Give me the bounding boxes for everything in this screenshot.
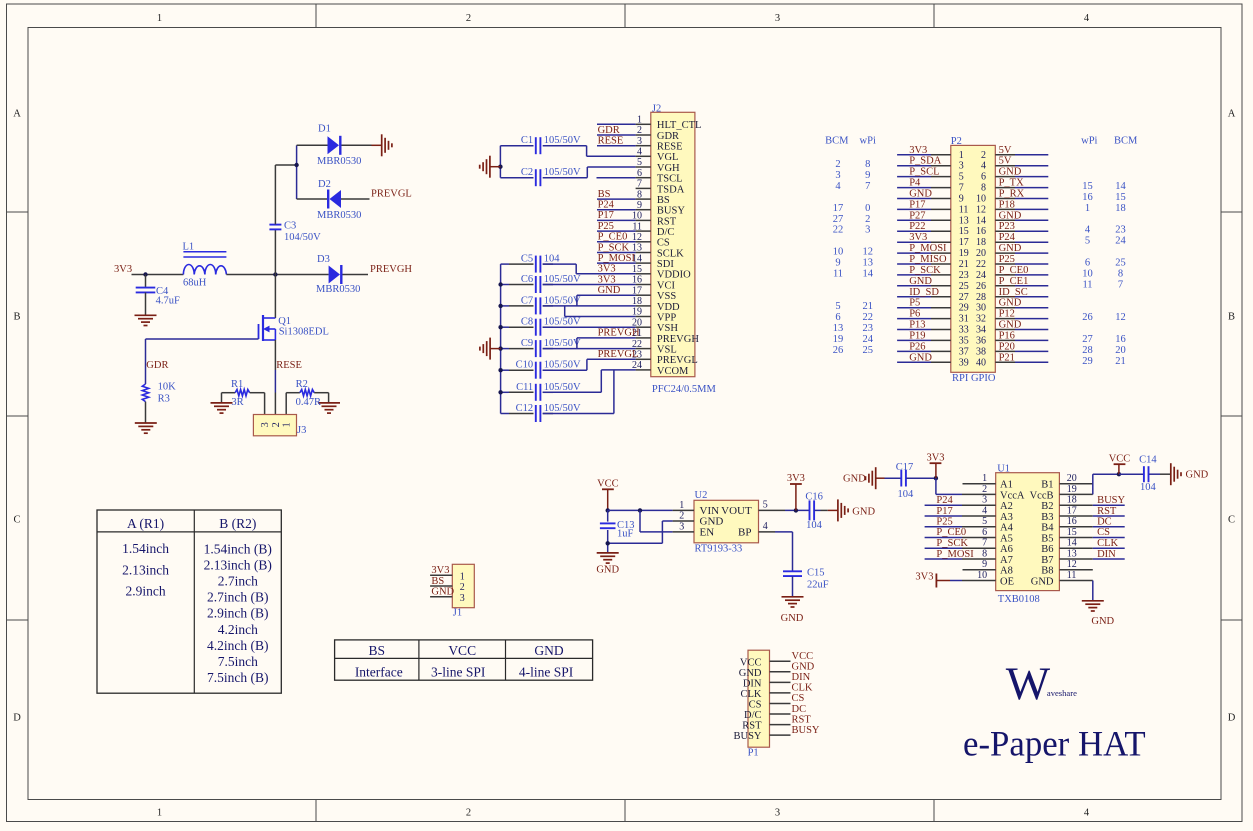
svg-text:B (R2): B (R2)	[219, 516, 256, 531]
svg-text:P_MOSI: P_MOSI	[936, 549, 974, 560]
svg-text:BUSY: BUSY	[792, 725, 820, 736]
svg-text:12: 12	[1067, 559, 1077, 570]
svg-text:24: 24	[1115, 236, 1126, 247]
svg-text:C: C	[13, 515, 20, 526]
svg-text:CS: CS	[792, 693, 805, 704]
svg-text:1: 1	[637, 115, 642, 126]
svg-text:34: 34	[976, 325, 986, 336]
svg-text:DIN: DIN	[792, 672, 811, 683]
svg-text:5V: 5V	[999, 145, 1012, 156]
svg-text:1: 1	[157, 808, 162, 819]
svg-text:P22: P22	[909, 221, 925, 232]
svg-text:RST: RST	[792, 714, 812, 725]
svg-text:5: 5	[763, 499, 768, 510]
svg-text:TSDA: TSDA	[657, 184, 685, 195]
svg-text:11: 11	[1067, 570, 1077, 581]
svg-text:8: 8	[637, 189, 642, 200]
svg-text:VCOM: VCOM	[657, 366, 689, 377]
svg-text:1: 1	[959, 150, 964, 161]
svg-text:P21: P21	[999, 352, 1015, 363]
svg-text:RT9193-33: RT9193-33	[695, 544, 743, 555]
svg-text:MBR0530: MBR0530	[317, 156, 361, 167]
svg-text:6: 6	[982, 527, 987, 538]
svg-text:2: 2	[466, 13, 471, 24]
svg-text:SDI: SDI	[657, 259, 674, 270]
svg-text:GND: GND	[1091, 616, 1114, 627]
svg-text:5: 5	[835, 301, 840, 312]
svg-text:6: 6	[981, 172, 986, 183]
svg-text:2: 2	[835, 159, 840, 170]
svg-text:23: 23	[1115, 225, 1126, 236]
svg-text:25: 25	[862, 345, 873, 356]
svg-text:A6: A6	[1000, 544, 1013, 555]
svg-text:8: 8	[1118, 268, 1123, 279]
svg-text:D: D	[1228, 713, 1236, 724]
svg-text:39: 39	[959, 357, 969, 368]
svg-text:ID_SC: ID_SC	[999, 287, 1028, 298]
svg-text:10: 10	[1082, 268, 1093, 279]
svg-text:33: 33	[959, 325, 969, 336]
svg-text:A8: A8	[1000, 566, 1013, 577]
svg-text:0: 0	[865, 203, 870, 214]
svg-text:VSH: VSH	[657, 323, 678, 334]
svg-text:8: 8	[982, 549, 987, 560]
svg-text:5: 5	[959, 172, 964, 183]
svg-text:13: 13	[862, 258, 873, 269]
svg-text:BP: BP	[738, 526, 751, 538]
svg-text:16: 16	[1067, 516, 1077, 527]
svg-text:23: 23	[959, 270, 969, 281]
svg-text:35: 35	[959, 335, 969, 346]
svg-text:38: 38	[976, 346, 986, 357]
svg-text:105/50V: 105/50V	[544, 360, 581, 371]
svg-text:DC: DC	[792, 704, 807, 715]
svg-text:PREVGH: PREVGH	[370, 264, 412, 275]
svg-text:8: 8	[865, 159, 870, 170]
svg-text:VDD: VDD	[657, 302, 680, 313]
svg-text:13: 13	[1067, 549, 1077, 560]
svg-text:4: 4	[1084, 13, 1090, 24]
svg-text:16: 16	[1115, 334, 1126, 345]
svg-text:24: 24	[862, 334, 873, 345]
svg-text:BUSY: BUSY	[657, 206, 685, 217]
svg-text:14: 14	[862, 268, 873, 279]
svg-text:22: 22	[862, 312, 873, 323]
svg-text:B6: B6	[1041, 544, 1053, 555]
svg-text:16: 16	[1082, 192, 1093, 203]
svg-text:B: B	[1228, 312, 1235, 323]
svg-text:GND: GND	[999, 320, 1022, 331]
svg-text:U2: U2	[695, 490, 708, 501]
svg-text:68uH: 68uH	[183, 277, 207, 288]
svg-text:A: A	[1228, 109, 1236, 120]
svg-text:J1: J1	[453, 608, 462, 619]
svg-text:3V3: 3V3	[598, 264, 616, 275]
svg-text:2: 2	[637, 125, 642, 136]
svg-text:P23: P23	[999, 221, 1015, 232]
svg-text:CLK: CLK	[1097, 538, 1118, 549]
svg-text:104: 104	[1140, 482, 1157, 493]
svg-text:VCC: VCC	[1109, 453, 1131, 464]
svg-text:2: 2	[982, 484, 987, 495]
svg-text:VGH: VGH	[657, 163, 680, 174]
svg-text:9: 9	[637, 200, 642, 211]
svg-text:105/50V: 105/50V	[544, 274, 581, 285]
svg-text:1uF: 1uF	[617, 529, 634, 540]
svg-text:L1: L1	[183, 242, 195, 253]
svg-text:GND: GND	[999, 167, 1022, 178]
svg-text:21: 21	[862, 301, 873, 312]
svg-text:4: 4	[1085, 225, 1091, 236]
svg-text:GND: GND	[999, 298, 1022, 309]
svg-text:P26: P26	[909, 341, 925, 352]
svg-text:C: C	[1228, 515, 1235, 526]
svg-text:105/50V: 105/50V	[544, 338, 581, 349]
svg-text:28: 28	[1082, 345, 1093, 356]
svg-text:VPP: VPP	[657, 312, 676, 323]
svg-text:HLT_CTL: HLT_CTL	[657, 120, 702, 131]
svg-text:J3: J3	[297, 425, 306, 436]
svg-text:B8: B8	[1041, 566, 1053, 577]
svg-text:1: 1	[157, 13, 162, 24]
svg-text:11: 11	[1082, 279, 1092, 290]
svg-text:26: 26	[976, 281, 986, 292]
svg-text:104: 104	[544, 254, 561, 265]
svg-text:3: 3	[260, 422, 271, 427]
svg-text:RESE: RESE	[598, 136, 624, 147]
svg-text:3: 3	[637, 136, 642, 147]
svg-text:P27: P27	[909, 210, 925, 221]
svg-text:3: 3	[865, 225, 870, 236]
svg-text:P1: P1	[748, 748, 759, 759]
svg-text:17: 17	[1067, 506, 1077, 517]
svg-text:P17: P17	[598, 210, 614, 221]
svg-text:104: 104	[806, 520, 823, 531]
svg-text:29: 29	[1082, 356, 1093, 367]
svg-text:B1: B1	[1041, 480, 1053, 491]
svg-text:22: 22	[976, 259, 986, 270]
svg-text:P25: P25	[999, 254, 1015, 265]
svg-text:C7: C7	[521, 295, 533, 306]
svg-text:e-Paper HAT: e-Paper HAT	[963, 724, 1146, 764]
svg-text:P12: P12	[999, 309, 1015, 320]
svg-text:C12: C12	[516, 403, 534, 414]
svg-text:27: 27	[1082, 334, 1093, 345]
svg-text:19: 19	[833, 334, 844, 345]
svg-text:A (R1): A (R1)	[127, 516, 164, 531]
svg-text:3V3: 3V3	[787, 473, 805, 484]
svg-text:ID_SD: ID_SD	[909, 287, 939, 298]
svg-text:BUSY: BUSY	[733, 731, 761, 742]
svg-text:1: 1	[982, 473, 987, 484]
svg-text:GND: GND	[909, 276, 932, 287]
svg-text:MBR0530: MBR0530	[317, 210, 361, 221]
svg-text:VDDIO: VDDIO	[657, 270, 691, 281]
svg-text:B5: B5	[1041, 534, 1053, 545]
svg-text:12: 12	[1115, 312, 1126, 323]
svg-text:7.5inch: 7.5inch	[218, 654, 258, 669]
svg-text:A2: A2	[1000, 501, 1013, 512]
svg-text:1: 1	[282, 422, 293, 427]
svg-text:2: 2	[460, 582, 465, 593]
svg-text:11: 11	[833, 268, 843, 279]
svg-text:C3: C3	[284, 220, 296, 231]
svg-text:2: 2	[865, 214, 870, 225]
svg-text:15: 15	[1067, 527, 1077, 538]
svg-text:15: 15	[959, 226, 969, 237]
svg-text:6: 6	[1085, 258, 1090, 269]
svg-text:EN: EN	[700, 526, 715, 538]
svg-text:DIN: DIN	[1097, 549, 1116, 560]
svg-text:P18: P18	[999, 199, 1015, 210]
svg-text:P25: P25	[598, 221, 614, 232]
svg-text:D/C: D/C	[657, 227, 675, 238]
svg-text:1: 1	[1085, 203, 1090, 214]
svg-text:3V3: 3V3	[598, 274, 616, 285]
svg-text:3: 3	[679, 521, 684, 532]
svg-text:9: 9	[835, 258, 840, 269]
svg-text:RST: RST	[657, 216, 677, 227]
svg-text:18: 18	[976, 237, 986, 248]
svg-text:26: 26	[833, 345, 844, 356]
svg-text:30: 30	[976, 303, 986, 314]
svg-text:3V3: 3V3	[909, 145, 927, 156]
svg-text:PREVGH: PREVGH	[598, 328, 640, 339]
svg-text:VSL: VSL	[657, 345, 677, 356]
svg-text:B: B	[13, 312, 20, 323]
svg-text:RESE: RESE	[276, 360, 302, 371]
svg-text:4: 4	[835, 181, 841, 192]
svg-text:VCC: VCC	[597, 479, 619, 490]
svg-text:5V: 5V	[999, 156, 1012, 167]
svg-text:105/50V: 105/50V	[544, 135, 581, 146]
svg-text:3: 3	[835, 170, 840, 181]
svg-text:7: 7	[865, 181, 870, 192]
svg-text:21: 21	[1115, 356, 1126, 367]
svg-text:CLK: CLK	[792, 683, 813, 694]
svg-text:D/C: D/C	[744, 710, 762, 721]
svg-text:SCLK: SCLK	[657, 248, 684, 259]
svg-text:GDR: GDR	[146, 360, 168, 371]
svg-text:4.7uF: 4.7uF	[156, 295, 180, 306]
svg-text:2.9inch (B): 2.9inch (B)	[207, 606, 269, 621]
svg-text:D3: D3	[317, 254, 330, 265]
svg-text:19: 19	[1067, 484, 1077, 495]
svg-text:CS: CS	[657, 238, 670, 249]
svg-text:11: 11	[959, 204, 969, 215]
svg-text:4.2inch (B): 4.2inch (B)	[207, 638, 269, 653]
svg-text:14: 14	[1067, 538, 1077, 549]
svg-text:29: 29	[959, 303, 969, 314]
svg-text:7: 7	[982, 538, 987, 549]
svg-text:A5: A5	[1000, 534, 1013, 545]
svg-text:5: 5	[637, 157, 642, 168]
svg-text:1: 1	[679, 500, 684, 511]
svg-text:22uF: 22uF	[807, 579, 829, 590]
svg-text:20: 20	[1067, 473, 1077, 484]
svg-text:VccA: VccA	[1000, 490, 1025, 501]
svg-text:13: 13	[833, 323, 844, 334]
svg-text:9: 9	[959, 194, 964, 205]
svg-text:Q1: Q1	[278, 316, 291, 327]
svg-text:BCM: BCM	[1114, 135, 1138, 146]
svg-text:20: 20	[976, 248, 986, 259]
svg-text:3V3: 3V3	[909, 232, 927, 243]
svg-text:37: 37	[959, 346, 969, 357]
svg-text:C17: C17	[896, 462, 914, 473]
svg-text:RST: RST	[742, 721, 762, 732]
svg-text:P_CE0: P_CE0	[936, 527, 966, 538]
svg-text:wPi: wPi	[860, 135, 876, 146]
svg-text:26: 26	[1082, 312, 1093, 323]
svg-text:105/50V: 105/50V	[544, 295, 581, 306]
svg-text:7: 7	[959, 183, 964, 194]
svg-text:24: 24	[976, 270, 986, 281]
svg-text:2: 2	[679, 510, 684, 521]
svg-text:P_MOSI: P_MOSI	[598, 253, 636, 264]
svg-text:P24: P24	[936, 495, 953, 506]
svg-text:BS: BS	[431, 576, 444, 587]
svg-text:9: 9	[865, 170, 870, 181]
svg-text:TSCL: TSCL	[657, 174, 683, 185]
svg-text:PREVGL: PREVGL	[371, 189, 412, 200]
svg-text:2: 2	[271, 422, 282, 427]
svg-text:3: 3	[460, 593, 465, 604]
svg-text:28: 28	[976, 292, 986, 303]
svg-text:20: 20	[1115, 345, 1126, 356]
svg-text:C6: C6	[521, 274, 533, 285]
svg-text:RPI GPIO: RPI GPIO	[952, 373, 996, 384]
svg-text:105/50V: 105/50V	[544, 167, 581, 178]
svg-text:14: 14	[1115, 181, 1126, 192]
svg-text:3V3: 3V3	[926, 452, 944, 463]
svg-text:MBR0530: MBR0530	[316, 284, 360, 295]
svg-text:TXB0108: TXB0108	[998, 594, 1040, 605]
svg-text:3V3: 3V3	[114, 264, 132, 275]
svg-text:13: 13	[959, 215, 969, 226]
svg-text:BS: BS	[657, 195, 670, 206]
svg-text:A: A	[13, 109, 21, 120]
svg-text:P17: P17	[936, 506, 952, 517]
svg-text:B2: B2	[1041, 501, 1053, 512]
svg-text:P_SCK: P_SCK	[598, 242, 630, 253]
svg-text:DC: DC	[1097, 517, 1112, 528]
svg-text:B7: B7	[1041, 555, 1053, 566]
svg-text:GND: GND	[852, 507, 875, 518]
svg-text:PREVGL: PREVGL	[598, 349, 639, 360]
svg-text:3V3: 3V3	[431, 565, 449, 576]
svg-text:P4: P4	[909, 178, 921, 189]
svg-text:A3: A3	[1000, 512, 1013, 523]
svg-text:PREVGH: PREVGH	[657, 334, 699, 345]
svg-text:OE: OE	[1000, 577, 1014, 588]
svg-text:P19: P19	[909, 330, 925, 341]
svg-text:C14: C14	[1139, 455, 1157, 466]
svg-text:5: 5	[1085, 236, 1090, 247]
svg-text:Si1308EDL: Si1308EDL	[279, 327, 329, 338]
svg-text:GND: GND	[431, 587, 454, 598]
svg-text:4: 4	[982, 506, 987, 517]
svg-text:GND: GND	[781, 613, 804, 624]
svg-text:VOUT: VOUT	[721, 505, 752, 517]
svg-text:P_TX: P_TX	[999, 178, 1025, 189]
svg-text:23: 23	[862, 323, 873, 334]
svg-text:17: 17	[833, 203, 844, 214]
svg-text:12: 12	[862, 247, 873, 258]
svg-text:C11: C11	[516, 382, 533, 393]
svg-text:GND: GND	[598, 285, 621, 296]
svg-text:BS: BS	[369, 643, 386, 658]
svg-text:104/50V: 104/50V	[284, 232, 321, 243]
svg-text:GND: GND	[1186, 469, 1209, 480]
svg-text:P_MOSI: P_MOSI	[909, 243, 947, 254]
svg-text:C9: C9	[521, 338, 533, 349]
svg-text:P16: P16	[999, 330, 1015, 341]
svg-text:C16: C16	[805, 492, 823, 503]
svg-text:2.13inch: 2.13inch	[122, 562, 169, 577]
svg-text:GND: GND	[739, 668, 762, 679]
svg-text:D2: D2	[318, 179, 331, 190]
svg-text:GND: GND	[792, 662, 815, 673]
svg-text:P_SDA: P_SDA	[909, 156, 942, 167]
svg-text:27: 27	[959, 292, 969, 303]
svg-text:RESE: RESE	[657, 142, 683, 153]
svg-text:8: 8	[981, 183, 986, 194]
svg-text:18: 18	[1115, 203, 1126, 214]
svg-text:GND: GND	[909, 352, 932, 363]
svg-text:VCC: VCC	[792, 651, 814, 662]
svg-text:105/50V: 105/50V	[544, 317, 581, 328]
svg-text:C2: C2	[521, 167, 533, 178]
svg-text:7.5inch (B): 7.5inch (B)	[207, 670, 269, 685]
svg-text:GDR: GDR	[598, 125, 620, 136]
svg-text:3-line SPI: 3-line SPI	[431, 665, 486, 680]
svg-text:PREVGL: PREVGL	[657, 355, 698, 366]
svg-text:3R: 3R	[231, 397, 243, 408]
svg-text:32: 32	[976, 314, 986, 325]
svg-text:aveshare: aveshare	[1047, 688, 1077, 698]
svg-text:2: 2	[981, 150, 986, 161]
svg-text:D1: D1	[318, 124, 331, 135]
svg-text:VCC: VCC	[448, 643, 476, 658]
svg-text:RST: RST	[1097, 506, 1117, 517]
svg-text:3: 3	[775, 808, 780, 819]
svg-text:A4: A4	[1000, 523, 1014, 534]
svg-text:10K: 10K	[158, 382, 177, 393]
svg-text:25: 25	[1115, 258, 1126, 269]
svg-text:9: 9	[982, 559, 987, 570]
svg-text:P_CE0: P_CE0	[999, 265, 1029, 276]
svg-text:C10: C10	[516, 360, 534, 371]
svg-text:P25: P25	[936, 517, 952, 528]
svg-text:19: 19	[959, 248, 969, 259]
svg-text:GND: GND	[596, 564, 619, 575]
svg-text:GND: GND	[999, 243, 1022, 254]
svg-text:2.13inch (B): 2.13inch (B)	[204, 558, 272, 573]
svg-text:36: 36	[976, 335, 986, 346]
svg-text:1.54inch (B): 1.54inch (B)	[204, 542, 272, 557]
svg-text:P_CE0: P_CE0	[598, 232, 628, 243]
svg-text:GND: GND	[909, 189, 932, 200]
svg-text:15: 15	[1115, 192, 1126, 203]
svg-text:VccB: VccB	[1030, 490, 1054, 501]
svg-text:VCC: VCC	[740, 657, 762, 668]
svg-text:A1: A1	[1000, 480, 1013, 491]
svg-text:17: 17	[959, 237, 969, 248]
svg-text:10: 10	[976, 194, 986, 205]
svg-text:6: 6	[637, 168, 642, 179]
svg-text:3V3: 3V3	[915, 572, 933, 583]
